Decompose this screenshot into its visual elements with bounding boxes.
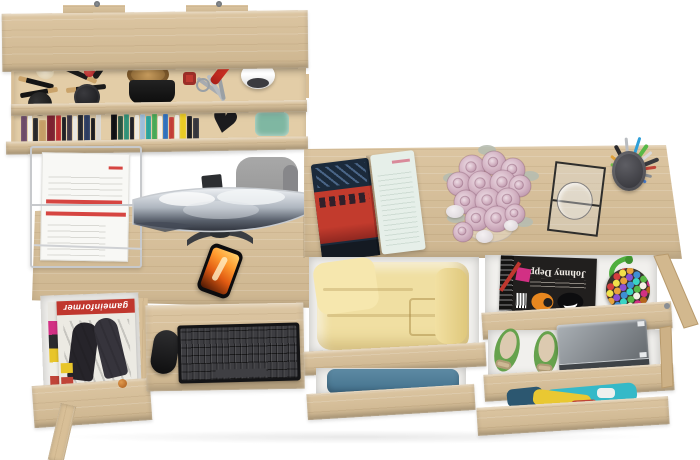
face-notch bbox=[543, 298, 552, 307]
black-keyboard bbox=[177, 322, 300, 383]
book bbox=[96, 114, 101, 142]
book bbox=[62, 117, 66, 142]
ballet-flat bbox=[532, 330, 560, 376]
paper-text-lines bbox=[48, 175, 122, 196]
book bbox=[91, 118, 95, 142]
sleeve-fold bbox=[312, 256, 381, 316]
cover-badge bbox=[61, 363, 73, 373]
rose-center bbox=[482, 195, 492, 205]
book bbox=[84, 115, 90, 142]
pen-cup bbox=[612, 151, 646, 191]
rose-center bbox=[491, 213, 501, 223]
gameinformer-logo: gameinformer bbox=[56, 299, 134, 316]
book bbox=[39, 120, 46, 142]
paper-text-lines bbox=[47, 221, 106, 256]
fold-line bbox=[323, 288, 413, 291]
orange-ball bbox=[118, 379, 127, 388]
rose-center bbox=[502, 194, 512, 204]
pebble bbox=[476, 230, 493, 243]
bracket-screw-icon bbox=[94, 1, 100, 7]
book bbox=[124, 114, 129, 142]
rose-center bbox=[458, 227, 466, 235]
book bbox=[21, 116, 27, 142]
jd-subtitle-lines bbox=[530, 278, 586, 288]
rose-center bbox=[515, 181, 524, 190]
rolled-edge bbox=[435, 268, 467, 344]
book bbox=[33, 118, 38, 142]
pebble bbox=[446, 205, 464, 218]
shelf-top-board bbox=[2, 10, 309, 72]
rose-center bbox=[453, 178, 463, 188]
book bbox=[163, 114, 168, 142]
book bbox=[146, 116, 151, 142]
teal-glass-dish bbox=[255, 112, 289, 136]
book bbox=[130, 117, 134, 142]
white-cloth bbox=[597, 388, 615, 398]
paper-red-bar bbox=[46, 211, 126, 216]
barcode bbox=[515, 293, 527, 308]
black-tray bbox=[129, 80, 175, 104]
key-fob bbox=[183, 72, 196, 85]
magazine-drawer-front bbox=[32, 378, 153, 428]
cover-splatter bbox=[63, 319, 131, 383]
tree-highlights bbox=[315, 162, 367, 188]
right-frame bbox=[640, 248, 700, 398]
curved-monitor bbox=[125, 180, 315, 248]
paper-red-mark bbox=[109, 166, 123, 169]
rose-center bbox=[488, 157, 498, 167]
johnny-depp-magazine: Johnny Depp bbox=[499, 255, 597, 313]
spacebar bbox=[215, 368, 266, 377]
book bbox=[78, 113, 83, 142]
rose-center bbox=[460, 196, 470, 206]
book bbox=[28, 114, 32, 142]
white-mouse-base bbox=[247, 78, 269, 88]
book bbox=[47, 113, 55, 142]
desk-shadow bbox=[60, 430, 650, 444]
book bbox=[118, 116, 123, 142]
rose-center bbox=[471, 213, 481, 223]
rose-center bbox=[475, 178, 485, 188]
rose-center bbox=[497, 177, 507, 187]
book bbox=[56, 115, 61, 142]
pebble bbox=[504, 220, 518, 231]
bracket-screw-icon bbox=[216, 1, 222, 7]
flame-highlight bbox=[211, 256, 229, 282]
pink-caption bbox=[392, 159, 410, 164]
open-magazine bbox=[306, 144, 431, 267]
rose-center bbox=[466, 162, 476, 172]
jd-title: Johnny Depp bbox=[522, 261, 593, 279]
pink-badge bbox=[515, 267, 531, 282]
gameinformer-magazine: gameinformer bbox=[56, 299, 137, 392]
book bbox=[152, 113, 157, 142]
tray-wire bbox=[32, 204, 140, 206]
book-row bbox=[21, 112, 213, 142]
book bbox=[135, 115, 139, 142]
book bbox=[140, 114, 145, 142]
key-ring-icon bbox=[196, 78, 210, 92]
yellow-clothes bbox=[317, 262, 469, 350]
book bbox=[111, 112, 117, 142]
book bbox=[67, 114, 72, 142]
book bbox=[73, 116, 77, 142]
page-text-lines bbox=[377, 169, 420, 247]
desk-set-render: ♥ bbox=[0, 0, 700, 460]
rose-center bbox=[510, 209, 518, 217]
